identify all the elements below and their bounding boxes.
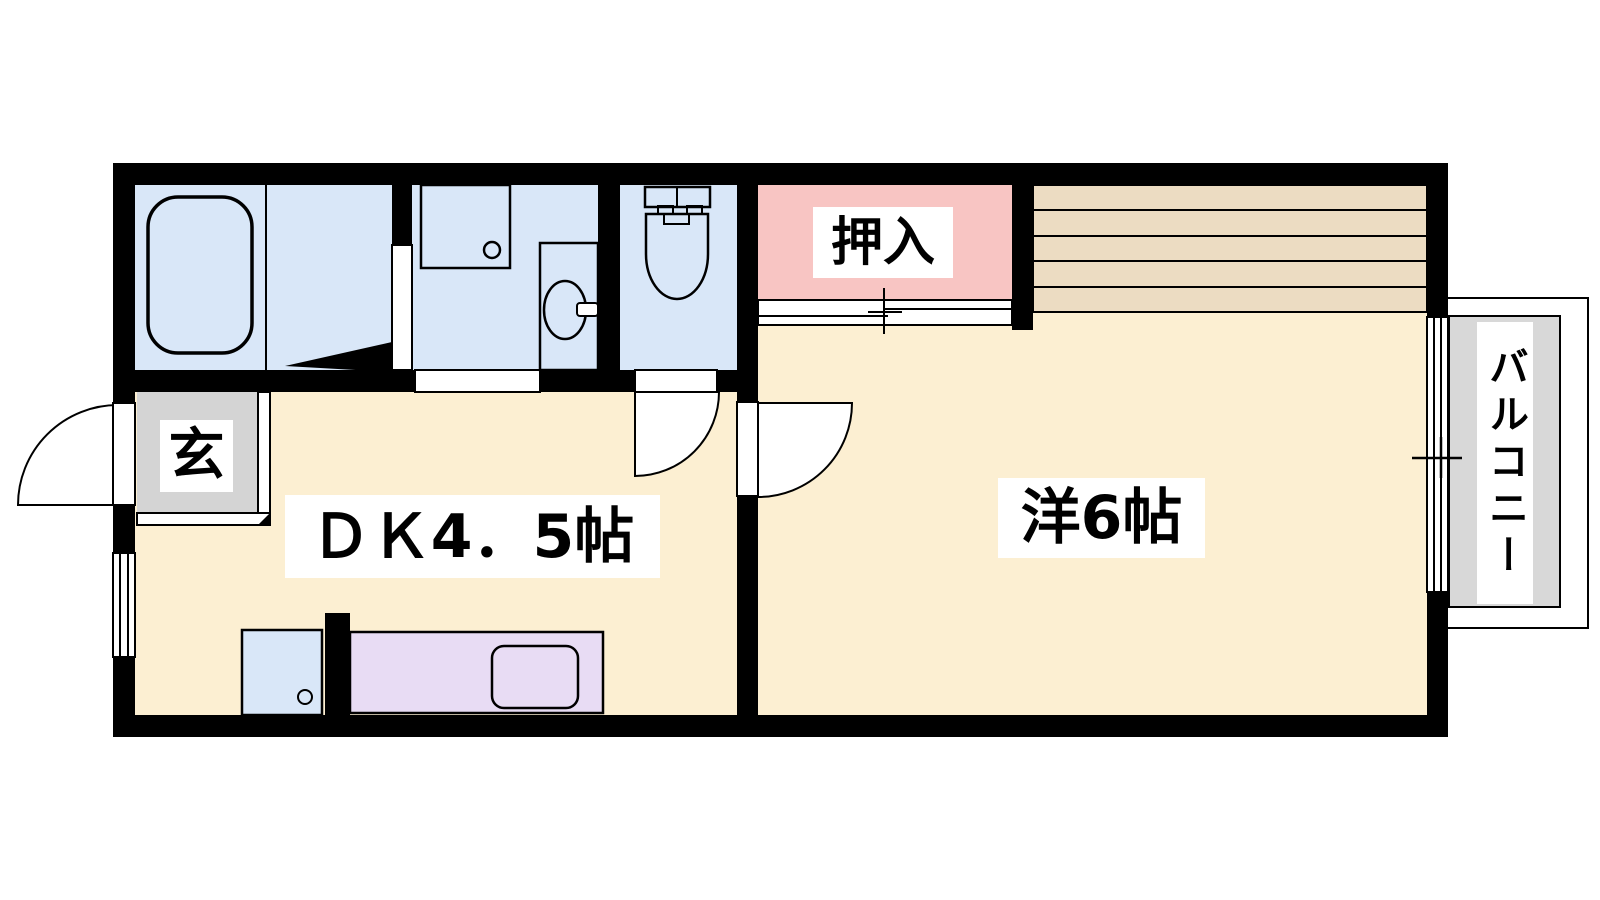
wall-bath-washroom (392, 185, 412, 245)
western-room-label: 洋6帖 (998, 478, 1205, 558)
loft-shelf-area (1033, 185, 1427, 312)
floor-plan-page: 玄 ＤＫ4．5帖 押入 洋6帖 バルコニー (0, 0, 1600, 900)
balcony-label: バルコニー (1477, 322, 1533, 604)
floor-plan-drawing (0, 0, 1600, 900)
entrance-label: 玄 (160, 420, 233, 492)
closet-label: 押入 (813, 207, 953, 278)
wall-closet-loft (1012, 185, 1033, 330)
entrance-step-right (258, 392, 270, 525)
entrance-step-bottom (137, 513, 270, 525)
washroom-door (415, 370, 540, 392)
dining-kitchen-label: ＤＫ4．5帖 (285, 495, 660, 578)
western-room-door-leaf (737, 402, 758, 496)
wall-kitchen-stub (325, 613, 350, 715)
toilet-door (635, 370, 717, 392)
entrance-door-leaf (113, 403, 135, 505)
vanity-faucet (577, 303, 598, 316)
left-wall-window (113, 553, 135, 657)
kitchen (242, 630, 603, 715)
kitchen-counter (350, 632, 603, 713)
wall-washroom-toilet (598, 185, 620, 370)
bathroom-door (392, 245, 412, 370)
loft-shelf (1033, 185, 1427, 312)
